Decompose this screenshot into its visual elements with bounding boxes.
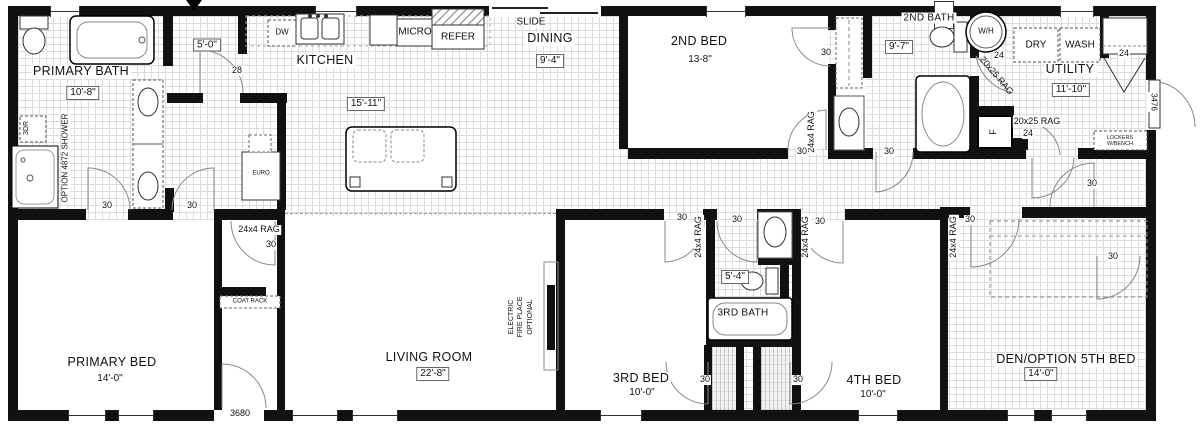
size-annotation: 30	[699, 375, 711, 385]
closet-3rd-bed	[712, 345, 736, 410]
dryer-label: DRY	[1026, 40, 1047, 51]
room-break-line	[285, 213, 556, 214]
room-dimension-label: 10'-0"	[628, 387, 655, 399]
room-label: DEN/OPTION 5TH BED	[994, 353, 1137, 367]
wall	[970, 16, 979, 58]
size-annotation: F	[989, 128, 999, 136]
size-annotation: 24x4 RAG	[694, 215, 704, 259]
wall	[753, 345, 761, 411]
refrigerator-label: REFER	[441, 32, 475, 43]
room-dimension-label: 10'-0"	[859, 389, 886, 401]
room-label: 2ND BATH	[901, 13, 956, 24]
wall	[940, 216, 948, 411]
wall	[238, 6, 247, 54]
wall	[845, 209, 940, 220]
window	[1051, 410, 1087, 421]
euro-cabinet-label: EURO	[252, 171, 269, 178]
wall	[163, 6, 173, 66]
closet-4th-bed	[761, 345, 792, 410]
window	[292, 410, 338, 421]
wall	[780, 265, 789, 299]
size-annotation: 30	[186, 201, 198, 211]
wall	[1100, 16, 1109, 58]
window	[352, 410, 398, 421]
wall	[128, 209, 173, 220]
wall	[277, 96, 286, 210]
size-annotation: 24x4 RAG	[237, 225, 281, 235]
window	[1060, 6, 1094, 17]
wall	[628, 148, 788, 159]
room-label: LIVING ROOM	[384, 351, 475, 365]
washer-label: WASH	[1065, 40, 1095, 51]
room-dimension-label: 9'-4"	[536, 54, 564, 68]
room-label: UTILITY	[1044, 63, 1097, 77]
wall	[758, 256, 792, 265]
wall	[1078, 148, 1148, 159]
wall	[619, 16, 628, 149]
closet-floor	[834, 16, 866, 148]
window	[1007, 410, 1035, 421]
window	[706, 6, 746, 17]
wall	[706, 209, 715, 347]
lockers-label: LOCKERS W/BENCH	[1096, 135, 1144, 147]
wall	[8, 209, 86, 220]
room-dimension-label: 15'-11"	[347, 97, 385, 111]
room-dimension-label: 14'-0"	[96, 373, 123, 385]
size-annotation: 30	[676, 213, 688, 223]
room-label: 3RD BATH	[715, 308, 770, 319]
window	[315, 6, 357, 17]
slide-door-opening	[489, 6, 601, 17]
fireplace-label: ELECTRIC FIRE PLACE OPTIONAL	[507, 297, 535, 338]
wall	[214, 209, 284, 220]
wall	[277, 210, 285, 410]
coat-rack-label: COAT RACK	[233, 299, 267, 306]
wall	[863, 16, 872, 78]
door-3476-swing	[1160, 82, 1195, 127]
size-annotation: 3DR	[23, 120, 31, 136]
size-annotation: 30	[796, 147, 808, 157]
entry-arrow-icon	[186, 0, 202, 11]
window	[858, 410, 898, 421]
room-label: 2ND BED	[669, 35, 729, 49]
size-annotation: 3680	[229, 409, 251, 419]
room-dimension-label: 5'-4"	[721, 270, 749, 284]
size-annotation: 30	[964, 215, 976, 225]
size-annotation: 30	[1107, 252, 1119, 262]
dishwasher-label: DW	[275, 29, 288, 38]
room-label: KITCHEN	[295, 54, 356, 68]
window	[50, 6, 80, 17]
size-annotation: 5'-0"	[193, 39, 221, 52]
room-label: 4TH BED	[845, 374, 904, 388]
size-annotation: 24	[1022, 129, 1034, 139]
room-dimension-label: 11'-10"	[1052, 83, 1090, 97]
size-annotation: 3476	[1149, 92, 1158, 112]
size-annotation: OPTION 4872 SHOWER	[62, 113, 71, 204]
wall	[214, 220, 222, 410]
size-annotation: 24x4 RAG	[801, 215, 811, 259]
wall	[828, 64, 836, 154]
wall	[736, 345, 744, 411]
size-annotation: 30	[814, 217, 826, 227]
wall	[167, 93, 203, 103]
wall	[828, 16, 836, 30]
wall	[556, 216, 565, 410]
room-dimension-label: 9'-7"	[885, 40, 913, 54]
wall	[556, 209, 664, 220]
room-label: DINING	[525, 32, 575, 46]
wall	[913, 148, 948, 159]
window	[118, 410, 154, 421]
room-label: PRIMARY BATH	[31, 65, 131, 79]
room-dimension-label: 14'-0"	[1024, 367, 1057, 381]
size-annotation: 30	[731, 215, 743, 225]
window	[68, 410, 106, 421]
size-annotation: 30	[883, 147, 895, 157]
size-annotation: 30	[820, 48, 832, 58]
wall	[1022, 207, 1147, 218]
room-label: PRIMARY BED	[66, 356, 159, 370]
room-dimension-label: 13-8"	[687, 54, 713, 66]
size-annotation: 30	[265, 240, 277, 250]
wall	[214, 287, 266, 296]
wall	[1012, 138, 1028, 150]
size-annotation: 30	[792, 375, 804, 385]
size-annotation: 28	[231, 66, 243, 76]
room-label: 3RD BED	[611, 372, 671, 386]
size-annotation: 24	[993, 51, 1005, 61]
size-annotation: 30	[101, 201, 113, 211]
floor-plan: DW MICRO REFER SLIDE W/H DRY WASH EURO C…	[0, 0, 1200, 427]
water-heater-label: W/H	[978, 28, 994, 37]
wall	[1146, 6, 1156, 421]
size-annotation: 24	[1118, 49, 1130, 59]
wall	[8, 410, 1156, 421]
size-annotation: 30	[1086, 179, 1098, 189]
room-dimension-label: 10'-8"	[66, 86, 99, 100]
slide-door-label: SLIDE	[517, 17, 546, 28]
wall	[972, 106, 1014, 115]
microwave-label: MICRO	[398, 27, 431, 38]
size-annotation: 24x4 RAG	[949, 215, 959, 259]
window	[600, 410, 642, 421]
size-annotation: 20x25 RAG	[1013, 117, 1062, 127]
room-dimension-label: 22'-8"	[416, 367, 449, 381]
size-annotation: 24x4 RAG	[807, 110, 817, 154]
